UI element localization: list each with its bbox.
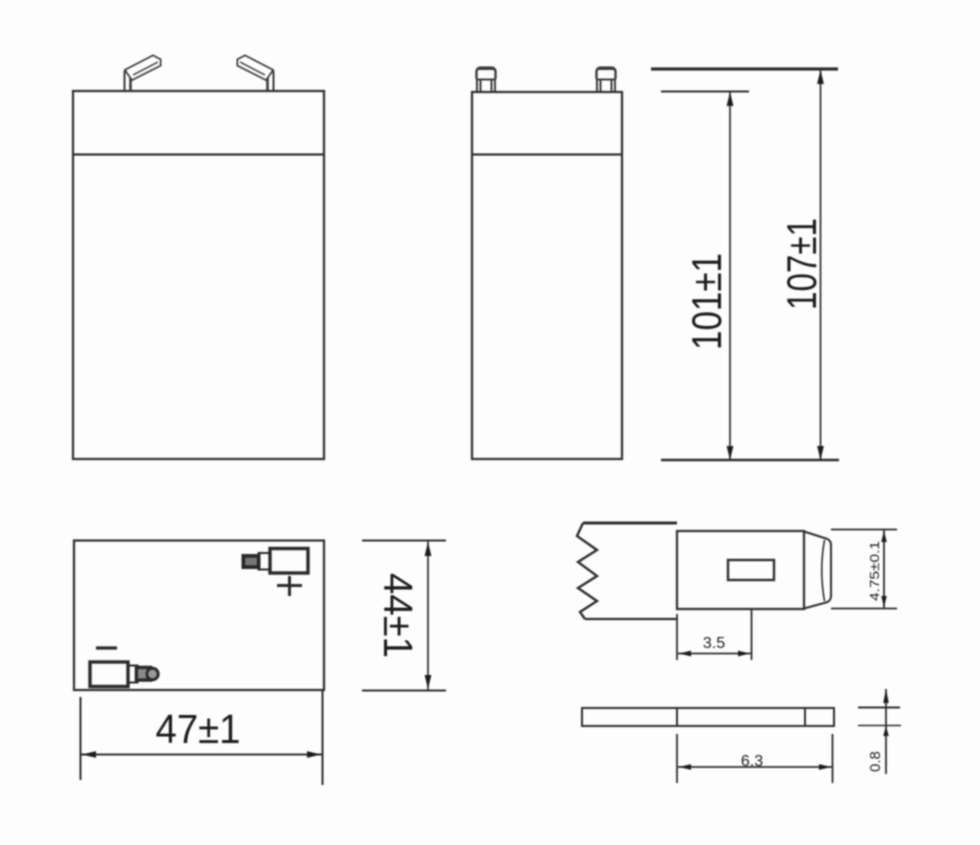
svg-text:0.8: 0.8 bbox=[867, 751, 884, 772]
svg-text:4.75±0.1: 4.75±0.1 bbox=[867, 541, 882, 601]
svg-text:44±1: 44±1 bbox=[375, 573, 421, 658]
svg-text:3.5: 3.5 bbox=[703, 635, 725, 652]
svg-text:101±1: 101±1 bbox=[683, 253, 730, 350]
svg-text:6.3: 6.3 bbox=[741, 753, 763, 770]
svg-text:47±1: 47±1 bbox=[156, 706, 241, 752]
svg-text:107±1: 107±1 bbox=[778, 218, 825, 310]
